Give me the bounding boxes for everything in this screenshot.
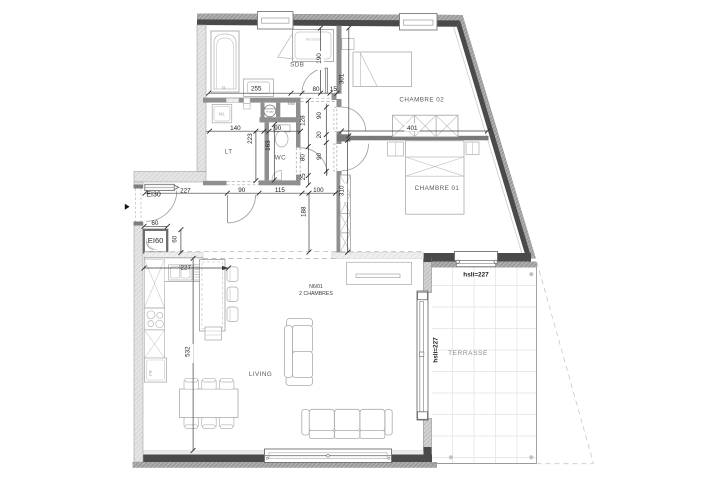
svg-text:SDB: SDB [290,62,304,69]
svg-text:80: 80 [300,154,307,162]
svg-text:255: 255 [251,85,262,92]
svg-text:CHAMBRE 01: CHAMBRE 01 [415,185,460,192]
svg-text:190: 190 [316,53,323,64]
svg-text:hsli=227: hsli=227 [433,337,440,363]
svg-text:90: 90 [316,152,323,160]
svg-text:90: 90 [238,187,246,194]
svg-text:WC: WC [275,155,286,162]
svg-text:301: 301 [339,73,346,84]
svg-text:401: 401 [407,125,418,132]
svg-text:25: 25 [300,173,307,181]
svg-text:188: 188 [300,206,307,217]
svg-text:60: 60 [151,220,159,227]
svg-text:EI60: EI60 [148,236,164,245]
svg-text:LIVING: LIVING [249,371,272,378]
svg-text:LT: LT [225,149,233,156]
svg-text:EI30: EI30 [146,191,161,198]
svg-text:80: 80 [312,86,320,93]
svg-text:N6/01: N6/01 [309,284,323,290]
svg-text:140: 140 [230,125,241,132]
svg-text:90: 90 [274,125,282,132]
svg-text:A-gaz: A-gaz [266,110,274,114]
svg-text:90x120cm: 90x120cm [306,38,322,42]
svg-text:310: 310 [339,185,346,196]
svg-text:90: 90 [316,112,323,120]
svg-text:115: 115 [275,187,286,194]
svg-text:2 CHAMBRES: 2 CHAMBRES [299,291,333,297]
svg-text:100: 100 [313,187,324,194]
svg-text:227: 227 [180,187,191,194]
svg-text:227: 227 [180,264,191,271]
svg-text:ML: ML [219,112,226,117]
svg-text:hsli=227: hsli=227 [463,272,489,279]
svg-text:CHAMBRE 02: CHAMBRE 02 [399,97,444,104]
svg-text:EI60: EI60 [288,102,295,106]
svg-text:223: 223 [247,133,254,144]
svg-text:128: 128 [300,115,307,126]
svg-text:FR: FR [148,370,153,376]
svg-text:163: 163 [265,140,272,151]
svg-text:532: 532 [184,346,191,357]
svg-text:60: 60 [172,235,179,243]
svg-text:15: 15 [330,86,338,93]
svg-text:TERRASSE: TERRASSE [448,350,488,357]
svg-text:20: 20 [316,131,323,139]
